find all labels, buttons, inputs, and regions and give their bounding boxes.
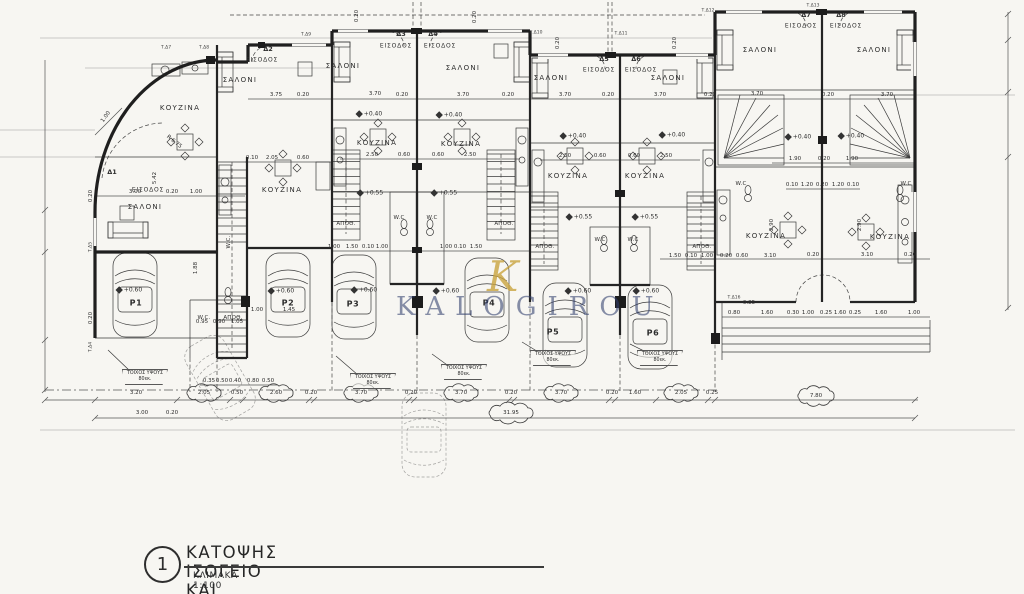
lbl-dimensions-values-v300: 3.00 [136,410,148,416]
lbl-rooms-kitchen: ΚΟΥΖΙΝΑ [262,186,302,194]
lbl-dimensions-values-v250: 2.50 [660,153,672,159]
lbl-dimensions-values-v250: 2.50 [559,153,571,159]
lbl-tags-t12: Τ.Δ12 [702,9,715,14]
lbl-levels-plus040: +0.40 [444,112,462,119]
lbl-dimensions-values-v300: 3.00 [129,189,141,195]
lbl-dimensions-front_offsets-0: 0.35 [203,378,215,384]
lbl-dimensions-bottom_chain-7: 3.70 [455,390,467,396]
lbl-dimensions-values-v370: 3.70 [369,91,381,97]
lbl-rooms-wc_short: W.C [628,237,639,243]
lbl-levels-plus060: +0.60 [276,288,294,295]
lbl-dimensions-bottom_chain-5: 3.70 [355,390,367,396]
lbl-dimensions-overall_width: 31.95 [503,410,519,416]
lbl-units-d5: Δ5 [599,55,609,63]
lbl-dimensions-values-v150: 1.50 [669,253,681,259]
lbl-rooms-kitchen: ΚΟΥΖΙΝΑ [548,172,588,180]
lbl-dimensions-values-v085: 0.85 [743,300,755,306]
lbl-dimensions-values-v145: 1.45 [283,307,295,313]
lbl-dimensions-values-v370: 3.70 [881,92,893,98]
lbl-rooms-living: ΣΑΛΟΝΙ [857,46,892,54]
lbl-dimensions-bottom_chain-13: 0.25 [706,390,718,396]
lbl-dimensions-values-v310: 3.10 [861,252,873,258]
lbl-dimensions-bottom_chain-4: 0.20 [305,390,317,396]
lbl-rooms-entrance: ΕΙΣΟΔΟΣ [424,43,456,50]
lbl-rooms-living: ΣΑΛΟΝΙ [446,64,481,72]
lbl-dimensions-values-v370: 3.70 [654,92,666,98]
lbl-dimensions-front_offsets-3: 0.80 [247,378,259,384]
lbl-dimensions-values-v060: 0.60 [594,153,606,159]
lbl-rooms-living: ΣΑΛΟΝΙ [534,74,569,82]
lbl-levels-plus040: +0.40 [568,133,586,140]
lbl-rooms-kitchen: ΚΟΥΖΙΝΑ [160,104,200,112]
low-wall-note-line2: 80εκ. [642,358,678,364]
low-wall-note-3: ΤΟΙΧΟΣ ΥΨΟΥΣ80εκ. [441,364,487,380]
lbl-rooms-wc_short: W.C [427,215,438,221]
lbl-dimensions-values-v250: 2.50 [464,152,476,158]
lbl-rooms-entrance: ΕΙΣΟΔΟΣ [246,57,278,64]
lbl-dimensions-bottom_chain-3: 2.60 [270,390,282,396]
lbl-dimensions-bottom_chain-2: 0.50 [231,390,243,396]
lbl-dimensions-front_offsets-4: 0.50 [262,378,274,384]
lbl-dimensions-front_offsets-2: 0.40 [229,378,241,384]
floor-plan-sheet: ΣΑΛΟΝΙΣΑΛΟΝΙΣΑΛΟΝΙΣΑΛΟΝΙΣΑΛΟΝΙΣΑΛΟΝΙΣΑΛΟ… [0,0,1024,594]
lbl-levels-plus055: +0.55 [574,214,592,221]
lbl-rooms-storage: ΑΠΟΘ. [494,221,513,227]
lbl-dimensions-values-v090: 0.90 [213,319,225,325]
lbl-dimensions-values-v100: 1.00 [100,110,112,123]
lbl-levels-plus040: +0.40 [793,134,811,141]
lbl-dimensions-bottom_chain-14: 7.80 [810,393,822,399]
lbl-dimensions-values-v205: 2.05 [266,155,278,161]
lbl-rooms-entrance: ΕΙΣΟΔΟΣ [380,43,412,50]
lbl-rooms-storage: ΑΠΟΘ. [692,244,711,250]
lbl-rooms-living: ΣΑΛΟΝΙ [743,46,778,54]
lbl-dimensions-values-v370: 3.70 [559,92,571,98]
lbl-dimensions-values-v542: 5.42 [152,172,158,184]
lbl-dimensions-values-v020: 0.20 [822,92,834,98]
lbl-rooms-living: ΣΑΛΟΝΙ [651,74,686,82]
lbl-dimensions-values-v010: 0.10 [847,182,859,188]
lbl-dimensions-values-v060: 0.60 [398,152,410,158]
lbl-levels-plus055: +0.55 [640,214,658,221]
lbl-dimensions-values-v188: 1.88 [193,262,199,274]
lbl-parking-p3: P3 [347,300,360,309]
lbl-dimensions-values-v020: 0.20 [396,92,408,98]
lbl-rooms-kitchen: ΚΟΥΖΙΝΑ [625,172,665,180]
lbl-dimensions-values-v190: 1.90 [846,156,858,162]
low-wall-note-5: ΤΟΙΧΟΣ ΥΨΟΥΣ80εκ. [637,350,683,366]
lbl-dimensions-values-v100: 1.00 [328,244,340,250]
lbl-rooms-kitchen: ΚΟΥΖΙΝΑ [357,139,397,147]
drawing-scale: ΚΛΙΜΑΚΑ 1:100 [193,571,238,591]
lbl-dimensions-bottom_chain-0: 3.20 [130,390,142,396]
lbl-tags-t5: Τ.Δ5 [89,242,94,252]
lbl-rooms-wc: W.C. [226,236,232,249]
lbl-levels-plus060: +0.60 [124,287,142,294]
lbl-dimensions-values-v160: 1.60 [761,310,773,316]
lbl-rooms-kitchen: ΚΟΥΖΙΝΑ [870,233,910,241]
lbl-rooms-wc_short: W.C [736,181,747,187]
lbl-dimensions-values-v010: 0.10 [786,182,798,188]
lbl-dimensions-bottom_chain-12: 2.05 [675,390,687,396]
lbl-dimensions-values-v020: 0.20 [818,156,830,162]
lbl-dimensions-values-v020: 0.20 [602,92,614,98]
lbl-dimensions-bottom_chain-11: 1.60 [629,390,641,396]
title-underline [184,566,544,568]
lbl-dimensions-values-v020: 0.20 [555,37,561,49]
lbl-dimensions-values-v010: 0.10 [685,253,697,259]
lbl-dimensions-values-v020: 0.20 [720,253,732,259]
lbl-tags-t8: Τ.Δ8 [199,46,209,51]
lbl-dimensions-values-v100: 1.00 [802,310,814,316]
lbl-dimensions-values-v100: 1.00 [190,189,202,195]
lbl-dimensions-bottom_chain-10: 0.20 [606,390,618,396]
low-wall-note-1: ΤΟΙΧΟΣ ΥΨΟΥΣ80εκ. [122,369,168,385]
lbl-parking-p1: P1 [130,299,143,308]
lbl-levels-plus040: +0.40 [667,132,685,139]
lbl-dimensions-values-v160: 1.60 [834,310,846,316]
lbl-rooms-entrance: ΕΙΣΟΔΟΣ [830,23,862,30]
low-wall-note-4: ΤΟΙΧΟΣ ΥΨΟΥΣ80εκ. [530,350,576,366]
lbl-tags-t4: Τ.Δ4 [89,342,94,352]
lbl-dimensions-values-v150: 1.50 [346,244,358,250]
lbl-dimensions-values-v020: 0.20 [672,37,678,49]
low-wall-note-line2: 80εκ. [535,358,571,364]
lbl-units-d6: Δ6 [631,55,641,63]
lbl-parking-p5: P5 [547,328,560,337]
lbl-levels-plus040: +0.40 [364,111,382,118]
lbl-rooms-living: ΣΑΛΟΝΙ [128,203,163,211]
lbl-rooms-living: ΣΑΛΟΝΙ [223,76,258,84]
lbl-dimensions-bottom_chain-9: 3.70 [555,390,567,396]
lbl-units-d7: Δ7 [801,11,811,19]
lbl-units-d8: Δ8 [836,11,846,19]
low-wall-note-line2: 80εκ. [446,372,482,378]
lbl-levels-plus060: +0.60 [359,287,377,294]
lbl-rooms-kitchen: ΚΟΥΖΙΝΑ [441,140,481,148]
lbl-dimensions-values-v290: 2.90 [857,219,863,231]
detail-number-bubble: 1 [144,546,181,583]
lbl-units-d4: Δ4 [428,30,438,38]
lbl-dimensions-values-v020: 0.20 [816,182,828,188]
lbl-dimensions-values-v105: 1.05 [231,319,243,325]
lbl-rooms-entrance: ΕΙΣΟΔΟΣ [785,23,817,30]
lbl-dimensions-values-v190: 1.90 [789,156,801,162]
lbl-dimensions-bottom_chain-1: 2.05 [198,390,210,396]
lbl-dimensions-values-v020: 0.20 [354,10,360,22]
lbl-dimensions-values-v020: 0.20 [704,92,716,98]
lbl-dimensions-values-v100: 1.00 [908,310,920,316]
lbl-dimensions-values-v025: 0.25 [849,310,861,316]
lbl-dimensions-values-v025: 0.25 [820,310,832,316]
lbl-dimensions-values-v020: 0.20 [166,189,178,195]
lbl-dimensions-values-v120: 1.20 [832,182,844,188]
lbl-levels-plus055: +0.55 [439,190,457,197]
lbl-dimensions-values-v160: 1.60 [875,310,887,316]
lbl-dimensions-values-v095: 0.95 [196,319,208,325]
lbl-dimensions-values-v370: 3.70 [457,92,469,98]
lbl-dimensions-values-v010: 0.10 [454,244,466,250]
lbl-dimensions-values-v100: 1.00 [440,244,452,250]
lbl-rooms-kitchen: ΚΟΥΖΙΝΑ [746,232,786,240]
lbl-dimensions-values-v010: 0.10 [246,155,258,161]
lbl-dimensions-values-v020: 0.20 [166,410,178,416]
lbl-units-d1: Δ1 [107,168,117,176]
lbl-tags-t16: Τ.Δ16 [728,296,741,301]
watermark-name: KALOGIROU [396,292,665,322]
lbl-dimensions-bottom_chain-6: 0.20 [405,390,417,396]
lbl-dimensions-values-v120: 1.20 [801,182,813,188]
low-wall-note-line2: 80εκ. [127,377,163,383]
lbl-dimensions-values-v060: 0.60 [628,153,640,159]
lbl-dimensions-values-v020: 0.20 [297,92,309,98]
lbl-dimensions-values-v250: 2.50 [366,152,378,158]
lbl-rooms-wc_short: W.C [595,237,606,243]
lbl-units-d2: Δ2 [263,45,273,53]
lbl-dimensions-values-v010: 0.10 [362,244,374,250]
lbl-rooms-storage: ΑΠΟΘ. [535,244,554,250]
lbl-rooms-wc_short: W.C [901,181,912,187]
lbl-dimensions-values-v020: 0.20 [904,252,916,258]
lbl-tags-t7: Τ.Δ7 [161,46,171,51]
lbl-dimensions-values-v020: 0.20 [502,92,514,98]
lbl-dimensions-values-v375: 3.75 [270,92,282,98]
lbl-dimensions-values-v150: 1.50 [470,244,482,250]
lbl-dimensions-values-v100: 1.00 [251,307,263,313]
lbl-dimensions-bottom_chain-8: 0.20 [505,390,517,396]
lbl-dimensions-values-v080: 0.80 [728,310,740,316]
lbl-dimensions-values-v030: 0.30 [787,310,799,316]
lbl-dimensions-values-v290: 2.90 [769,219,775,231]
lbl-rooms-living: ΣΑΛΟΝΙ [326,62,361,70]
lbl-tags-t11: Τ.Δ11 [615,32,628,37]
lbl-rooms-storage: ΑΠΟΘ. [336,221,355,227]
lbl-dimensions-values-v060: 0.60 [736,253,748,259]
lbl-dimensions-values-v060: 0.60 [432,152,444,158]
lbl-dimensions-values-v100: 1.00 [376,244,388,250]
lbl-rooms-wc_short: W.C [394,215,405,221]
lbl-parking-p6: P6 [647,329,660,338]
lbl-dimensions-front_offsets-1: 0.50 [216,378,228,384]
lbl-dimensions-values-v310: 3.10 [764,253,776,259]
lbl-dimensions-values-v020: 0.20 [88,190,94,202]
lbl-levels-plus040: +0.40 [846,133,864,140]
lbl-dimensions-values-v020: 0.20 [88,312,94,324]
lbl-tags-t10: Τ.Δ10 [530,31,543,36]
lbl-units-d3: Δ3 [396,30,406,38]
low-wall-note-2: ΤΟΙΧΟΣ ΥΨΟΥΣ80εκ. [350,373,396,389]
lbl-rooms-entrance: ΕΙΣΟΔΟΣ [625,67,657,74]
lbl-tags-t13: Τ.Δ13 [807,4,820,9]
lbl-rooms-entrance: ΕΙΣΟΔΟΣ [583,67,615,74]
lbl-dimensions-values-v020: 0.20 [807,252,819,258]
low-wall-note-line2: 80εκ. [355,381,391,387]
lbl-levels-plus055: +0.55 [365,190,383,197]
lbl-dimensions-values-v060: 0.60 [297,155,309,161]
lbl-dimensions-values-v100: 1.00 [701,253,713,259]
lbl-dimensions-values-v020: 0.20 [472,11,478,23]
lbl-dimensions-values-r675: R 6.75 [165,134,183,150]
lbl-dimensions-values-v370: 3.70 [751,91,763,97]
lbl-tags-t9: Τ.Δ9 [301,33,311,38]
